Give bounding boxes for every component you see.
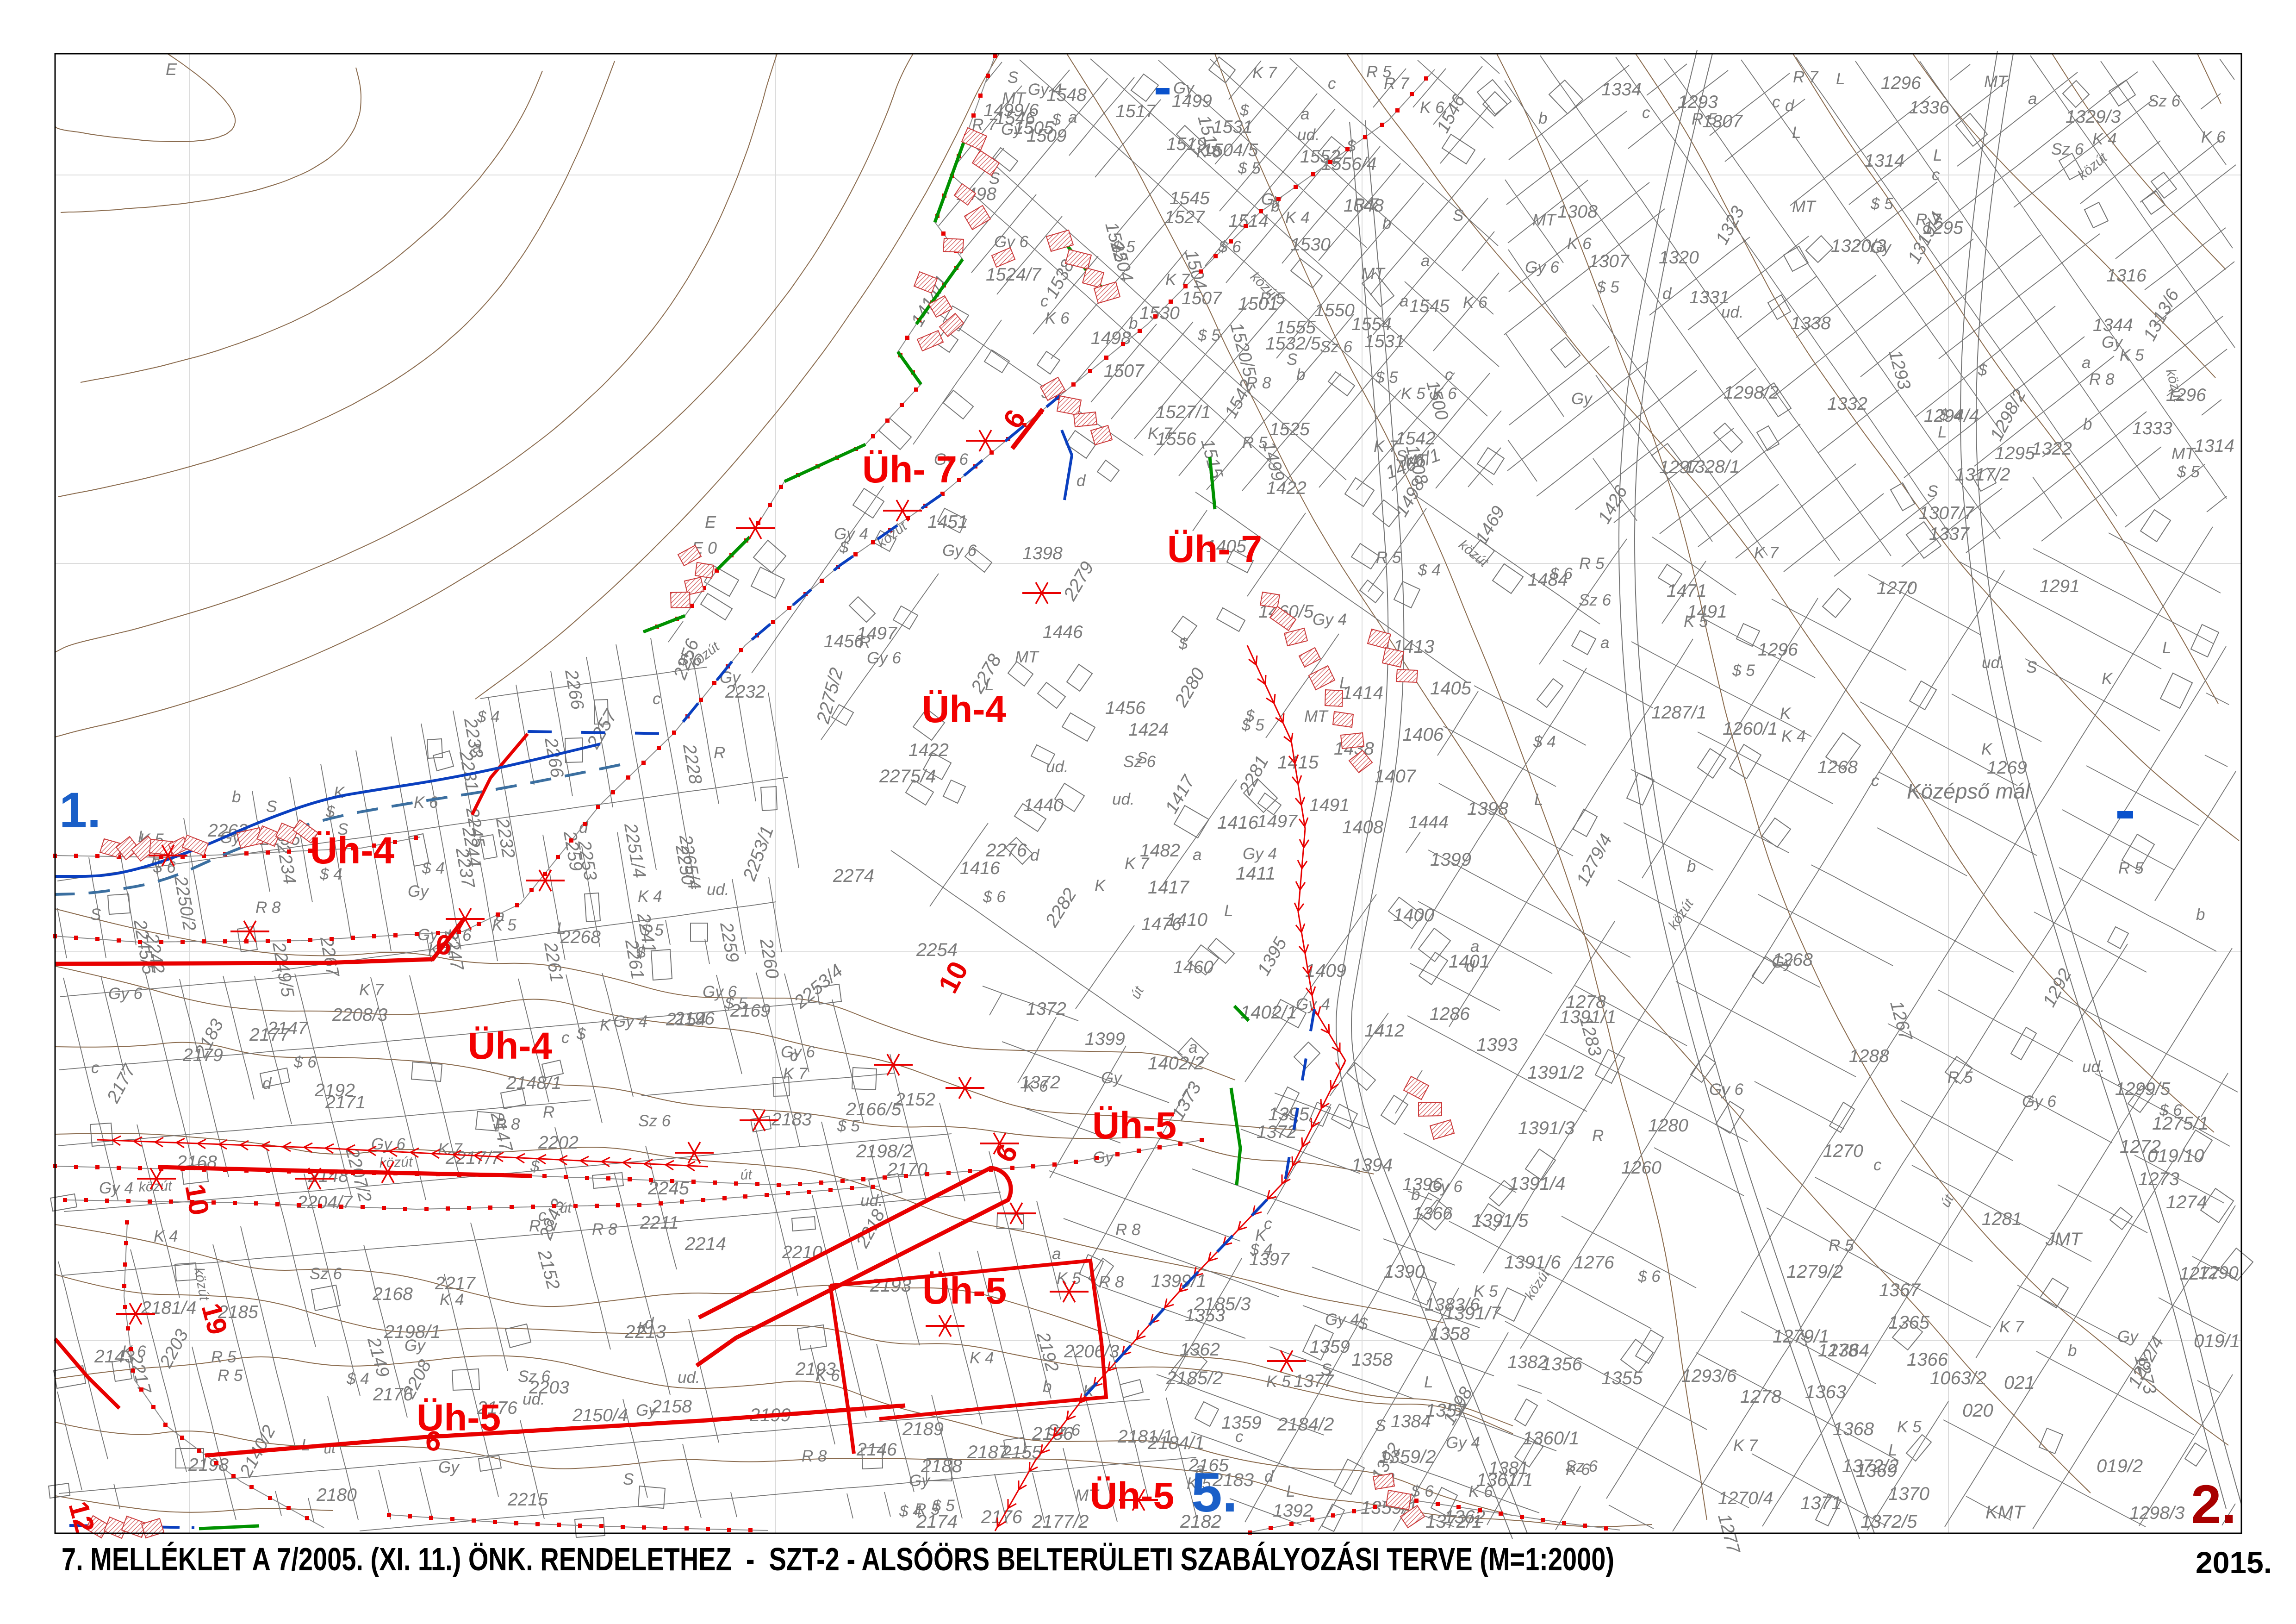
svg-text:c: c — [653, 690, 661, 708]
svg-text:Gy: Gy — [2117, 1328, 2139, 1346]
svg-text:d: d — [1030, 846, 1040, 864]
svg-text:1552: 1552 — [1300, 147, 1340, 167]
svg-text:2196: 2196 — [674, 1009, 715, 1029]
svg-text:2211: 2211 — [640, 1213, 679, 1233]
svg-text:a: a — [473, 738, 481, 756]
svg-text:1507: 1507 — [1182, 288, 1222, 308]
svg-text:1424: 1424 — [1128, 720, 1169, 740]
svg-text:K 7: K 7 — [1252, 64, 1277, 82]
svg-text:1405: 1405 — [1430, 678, 1472, 699]
svg-text:$ 6: $ 6 — [983, 888, 1006, 906]
svg-text:$: $ — [1346, 137, 1356, 155]
svg-text:Gy 4: Gy 4 — [1446, 1434, 1480, 1452]
svg-text:K 6: K 6 — [1432, 385, 1457, 403]
svg-text:1270/4: 1270/4 — [1718, 1488, 1773, 1508]
svg-text:a: a — [2028, 90, 2037, 108]
svg-text:S: S — [1453, 206, 1463, 225]
svg-text:2204/7: 2204/7 — [297, 1193, 353, 1212]
svg-text:1272: 1272 — [2120, 1137, 2161, 1157]
svg-text:R 8: R 8 — [1246, 374, 1271, 392]
svg-text:Gy: Gy — [408, 882, 429, 900]
svg-text:K 7: K 7 — [1125, 855, 1150, 873]
svg-text:L: L — [1286, 1482, 1295, 1500]
svg-text:1287/1: 1287/1 — [1651, 703, 1706, 723]
svg-text:1307: 1307 — [1589, 251, 1630, 271]
svg-text:1411: 1411 — [1236, 863, 1276, 884]
svg-text:d: d — [1076, 472, 1086, 490]
svg-text:2152: 2152 — [895, 1090, 935, 1110]
svg-text:2185/3: 2185/3 — [1194, 1294, 1251, 1314]
svg-text:$ 4: $ 4 — [477, 708, 500, 726]
svg-text:$ 5: $ 5 — [1870, 195, 1893, 213]
svg-text:L: L — [1792, 124, 1801, 142]
svg-text:c: c — [1445, 366, 1453, 384]
svg-text:K 6: K 6 — [1420, 99, 1444, 117]
svg-text:R 5: R 5 — [1242, 434, 1268, 452]
svg-text:1391/2: 1391/2 — [1527, 1062, 1584, 1083]
svg-text:E: E — [705, 512, 716, 531]
svg-text:ud.: ud. — [1046, 758, 1069, 776]
svg-text:K: K — [2102, 670, 2113, 688]
svg-text:Gy: Gy — [1001, 120, 1023, 138]
svg-text:S: S — [623, 1470, 634, 1488]
svg-text:K 7: K 7 — [783, 1065, 808, 1083]
svg-text:1279/2: 1279/2 — [1786, 1262, 1843, 1282]
svg-text:$: $ — [1239, 101, 1249, 119]
svg-text:K 5: K 5 — [2120, 346, 2144, 364]
svg-text:2198: 2198 — [188, 1455, 229, 1475]
svg-text:2177/2: 2177/2 — [1032, 1512, 1089, 1532]
svg-text:Gy 6: Gy 6 — [867, 649, 901, 667]
svg-text:$: $ — [530, 1157, 540, 1175]
svg-text:Gy: Gy — [1101, 1069, 1123, 1087]
svg-text:1357: 1357 — [1425, 1400, 1468, 1421]
svg-text:L: L — [1938, 423, 1947, 441]
svg-text:Gy 6: Gy 6 — [1428, 1178, 1462, 1196]
svg-text:b: b — [2083, 415, 2092, 433]
svg-text:Gy 4: Gy 4 — [1028, 81, 1062, 99]
svg-text:1402/2: 1402/2 — [1148, 1053, 1204, 1074]
svg-text:R 8: R 8 — [255, 899, 281, 917]
svg-text:MT: MT — [2172, 445, 2196, 463]
svg-text:$: $ — [1358, 1315, 1368, 1333]
svg-text:a: a — [1193, 846, 1201, 864]
svg-text:$: $ — [1178, 635, 1188, 653]
svg-text:$ 5: $ 5 — [1112, 238, 1135, 256]
svg-text:1317/2: 1317/2 — [1955, 465, 2010, 485]
svg-text:2174: 2174 — [916, 1512, 958, 1532]
svg-text:1391/5: 1391/5 — [1472, 1211, 1529, 1231]
svg-text:1276: 1276 — [1574, 1253, 1614, 1273]
svg-text:Sz 6: Sz 6 — [2148, 92, 2181, 110]
svg-text:K 4: K 4 — [638, 887, 662, 906]
svg-text:6: 6 — [435, 929, 453, 961]
svg-text:1531: 1531 — [1213, 117, 1253, 137]
svg-text:2185/2: 2185/2 — [1166, 1368, 1223, 1388]
svg-text:Gy 4: Gy 4 — [1325, 1311, 1359, 1329]
svg-text:1391/6: 1391/6 — [1504, 1252, 1561, 1273]
svg-text:K 6: K 6 — [414, 793, 438, 812]
svg-text:b: b — [1411, 1186, 1420, 1204]
svg-text:1260/1: 1260/1 — [1723, 719, 1778, 739]
svg-text:K 4: K 4 — [440, 1291, 464, 1309]
svg-text:1298/2: 1298/2 — [1724, 383, 1779, 403]
svg-text:$ 5: $ 5 — [1732, 662, 1755, 680]
svg-text:1451: 1451 — [927, 512, 968, 532]
svg-text:$ 4: $ 4 — [1939, 406, 1962, 424]
svg-text:$: $ — [636, 943, 646, 962]
svg-text:1391/4: 1391/4 — [1509, 1174, 1565, 1194]
svg-text:L: L — [557, 919, 566, 937]
svg-text:ud.: ud. — [523, 1390, 545, 1408]
svg-text:K 7: K 7 — [1374, 437, 1399, 456]
svg-text:2184/2: 2184/2 — [1277, 1414, 1334, 1435]
svg-text:R 7: R 7 — [1916, 211, 1941, 229]
svg-text:a: a — [1400, 292, 1408, 310]
svg-text:1525: 1525 — [1269, 419, 1310, 439]
svg-text:Gy 6: Gy 6 — [2022, 1093, 2056, 1111]
svg-text:1422: 1422 — [1266, 478, 1307, 498]
svg-text:b: b — [1538, 109, 1547, 127]
svg-text:S: S — [2026, 658, 2037, 676]
svg-text:R 5: R 5 — [1579, 555, 1605, 573]
svg-text:1299/5: 1299/5 — [2115, 1079, 2171, 1099]
svg-text:L: L — [2162, 639, 2171, 657]
svg-text:1390: 1390 — [1384, 1262, 1425, 1282]
svg-text:d: d — [1662, 285, 1672, 303]
svg-text:1366: 1366 — [1907, 1349, 1948, 1370]
svg-text:1273: 1273 — [2138, 1169, 2179, 1189]
svg-text:1314: 1314 — [1864, 151, 1904, 171]
svg-text:Gy 6: Gy 6 — [942, 542, 977, 560]
svg-text:1384: 1384 — [1391, 1412, 1431, 1431]
svg-text:b: b — [1043, 1378, 1052, 1396]
svg-text:2208/3: 2208/3 — [332, 1005, 388, 1025]
svg-text:MT: MT — [1361, 265, 1386, 283]
svg-text:019/1: 019/1 — [2194, 1331, 2240, 1351]
svg-text:1550: 1550 — [1314, 300, 1355, 320]
svg-text:1359/2: 1359/2 — [1379, 1447, 1436, 1467]
svg-text:Üh-4: Üh-4 — [922, 688, 1007, 731]
svg-text:R 5: R 5 — [1829, 1237, 1854, 1255]
svg-text:Gy: Gy — [1772, 953, 1793, 971]
svg-text:1407: 1407 — [1375, 766, 1417, 787]
svg-text:a: a — [1052, 1245, 1061, 1263]
svg-text:1291: 1291 — [2040, 576, 2080, 596]
svg-text:Üh- 7: Üh- 7 — [862, 449, 957, 491]
svg-text:R: R — [1592, 1127, 1604, 1145]
svg-text:1391/3: 1391/3 — [1518, 1118, 1574, 1138]
svg-text:1293: 1293 — [1678, 92, 1718, 112]
svg-text:R 8: R 8 — [495, 1115, 520, 1133]
svg-text:$ 5: $ 5 — [1238, 159, 1261, 177]
svg-text:1337: 1337 — [1929, 524, 1970, 544]
svg-text:1372/1: 1372/1 — [1425, 1512, 1482, 1532]
svg-text:R 5: R 5 — [218, 1367, 243, 1385]
svg-text:2254: 2254 — [916, 940, 958, 960]
svg-text:1332: 1332 — [1827, 394, 1867, 414]
svg-text:K 7: K 7 — [1754, 544, 1779, 562]
svg-text:S: S — [1321, 1361, 1332, 1379]
svg-text:1338: 1338 — [1791, 313, 1831, 333]
svg-text:R 5: R 5 — [1376, 549, 1401, 567]
svg-text:1446: 1446 — [1043, 622, 1083, 642]
svg-text:1392: 1392 — [1273, 1501, 1313, 1521]
svg-text:R 8: R 8 — [1115, 1221, 1141, 1239]
svg-text:MT: MT — [1984, 73, 2009, 91]
svg-text:$ 5: $ 5 — [1197, 326, 1220, 344]
svg-text:1394: 1394 — [1351, 1155, 1393, 1175]
svg-text:a: a — [2082, 354, 2091, 372]
svg-text:K 6: K 6 — [122, 1343, 146, 1361]
svg-text:1286: 1286 — [1430, 1004, 1470, 1024]
svg-text:1275/1: 1275/1 — [2152, 1113, 2209, 1134]
svg-text:Sz 6: Sz 6 — [310, 1265, 342, 1283]
svg-text:2166/5: 2166/5 — [846, 1099, 902, 1119]
svg-text:L: L — [1836, 70, 1845, 88]
svg-text:1270: 1270 — [1823, 1141, 1863, 1161]
svg-text:Gy 6: Gy 6 — [994, 233, 1028, 251]
svg-text:2215: 2215 — [507, 1490, 548, 1510]
svg-text:R 7: R 7 — [1384, 75, 1410, 93]
svg-text:K 6: K 6 — [1196, 143, 1221, 161]
svg-text:1401: 1401 — [1449, 951, 1490, 972]
svg-text:2189: 2189 — [902, 1419, 944, 1439]
svg-text:b: b — [1687, 857, 1696, 875]
svg-text:S: S — [1137, 749, 1147, 767]
svg-text:Gy: Gy — [1870, 238, 1892, 256]
svg-text:2268: 2268 — [560, 927, 601, 947]
svg-text:K 5: K 5 — [1897, 1418, 1922, 1436]
svg-text:Gy 6: Gy 6 — [108, 985, 143, 1003]
svg-text:1524/7: 1524/7 — [986, 265, 1042, 285]
svg-text:2274: 2274 — [833, 866, 874, 886]
svg-text:Sz 6: Sz 6 — [1579, 591, 1612, 609]
svg-text:b: b — [1129, 314, 1138, 332]
svg-text:1395: 1395 — [1268, 1104, 1310, 1124]
svg-text:7. MELLÉKLET A 7/2005. (XI. 11: 7. MELLÉKLET A 7/2005. (XI. 11.) ÖNK. RE… — [62, 1541, 1614, 1577]
svg-text:1356: 1356 — [1541, 1354, 1583, 1374]
svg-text:1371: 1371 — [1800, 1493, 1842, 1513]
svg-text:K 5: K 5 — [1474, 1282, 1498, 1300]
svg-text:Üh-5: Üh-5 — [1090, 1475, 1174, 1517]
svg-text:K 5: K 5 — [1266, 1373, 1291, 1391]
svg-text:Gy 6: Gy 6 — [1709, 1081, 1743, 1099]
svg-text:1268: 1268 — [1817, 757, 1858, 777]
svg-text:019/2: 019/2 — [2097, 1456, 2143, 1476]
svg-text:L: L — [1424, 1373, 1433, 1391]
svg-text:d: d — [1785, 97, 1795, 115]
svg-text:Gy 4: Gy 4 — [1243, 845, 1277, 863]
svg-text:1409: 1409 — [1305, 961, 1346, 981]
svg-text:2202: 2202 — [538, 1133, 579, 1153]
svg-text:1408: 1408 — [1342, 817, 1384, 837]
svg-text:K 4: K 4 — [970, 1349, 994, 1367]
svg-text:2015.: 2015. — [2196, 1545, 2272, 1580]
svg-text:K 7: K 7 — [1733, 1437, 1758, 1455]
svg-text:1269: 1269 — [1987, 758, 2027, 778]
svg-text:1545: 1545 — [1170, 188, 1210, 208]
svg-text:Üh-5: Üh-5 — [922, 1270, 1007, 1312]
svg-text:1270: 1270 — [1877, 578, 1917, 598]
svg-text:1372: 1372 — [1026, 999, 1066, 1019]
svg-text:2.: 2. — [2191, 1474, 2236, 1535]
svg-text:1545: 1545 — [1409, 296, 1450, 316]
svg-text:K 7: K 7 — [359, 981, 384, 999]
svg-text:út: út — [740, 1167, 753, 1183]
svg-text:K: K — [334, 784, 345, 802]
svg-text:R: R — [543, 1103, 554, 1121]
svg-text:1362: 1362 — [1180, 1340, 1220, 1360]
svg-text:1491: 1491 — [1309, 795, 1350, 815]
svg-text:c: c — [1040, 292, 1049, 310]
svg-text:2176: 2176 — [373, 1385, 413, 1405]
svg-text:R 5: R 5 — [2118, 859, 2144, 877]
svg-text:$ 4: $ 4 — [422, 859, 445, 877]
svg-text:1527/1: 1527/1 — [1156, 402, 1211, 422]
svg-text:$ 5: $ 5 — [2177, 463, 2200, 481]
svg-text:K: K — [1095, 877, 1106, 895]
svg-text:1363: 1363 — [1805, 1382, 1846, 1402]
svg-text:Üh- 7: Üh- 7 — [1167, 528, 1262, 570]
svg-text:$ 4: $ 4 — [1533, 733, 1556, 751]
svg-text:c: c — [1932, 166, 1940, 184]
svg-text:2276: 2276 — [985, 840, 1027, 861]
svg-text:2148/1: 2148/1 — [506, 1073, 561, 1093]
svg-text:1517: 1517 — [1115, 101, 1156, 121]
svg-text:$: $ — [1978, 361, 1987, 379]
svg-text:1460: 1460 — [1173, 957, 1213, 977]
svg-text:$ 4: $ 4 — [1250, 1241, 1273, 1259]
svg-text:Gy 4: Gy 4 — [99, 1179, 133, 1197]
svg-text:R 7: R 7 — [1793, 68, 1819, 86]
svg-text:1358: 1358 — [1351, 1349, 1393, 1370]
svg-text:2187: 2187 — [967, 1442, 1009, 1462]
svg-text:Középső mál: Középső mál — [1907, 779, 2031, 803]
svg-text:K 6: K 6 — [815, 1367, 840, 1385]
svg-text:1355: 1355 — [1601, 1368, 1643, 1388]
svg-text:MT: MT — [1792, 198, 1817, 216]
svg-text:c: c — [1328, 75, 1336, 93]
svg-text:2180: 2180 — [316, 1485, 357, 1505]
svg-text:R 8: R 8 — [802, 1447, 827, 1465]
svg-text:2198/1: 2198/1 — [384, 1322, 441, 1342]
svg-text:1399: 1399 — [1085, 1029, 1125, 1049]
svg-text:K 5: K 5 — [1401, 385, 1425, 403]
svg-text:1333: 1333 — [2132, 418, 2172, 438]
svg-text:MT: MT — [1532, 211, 1557, 229]
svg-text:a: a — [1300, 105, 1309, 123]
svg-text:1414: 1414 — [1342, 683, 1383, 703]
svg-text:1308: 1308 — [1557, 202, 1598, 222]
svg-text:1290: 1290 — [2198, 1263, 2239, 1283]
svg-text:1298/3: 1298/3 — [2129, 1503, 2185, 1523]
svg-text:1366: 1366 — [1412, 1204, 1453, 1224]
svg-text:c: c — [1871, 772, 1879, 790]
svg-text:K 7: K 7 — [438, 1140, 463, 1158]
svg-text:1281: 1281 — [1982, 1209, 2022, 1229]
svg-text:a: a — [1600, 634, 1609, 652]
svg-text:2158: 2158 — [651, 1397, 692, 1417]
svg-text:S: S — [266, 798, 277, 816]
svg-text:ud.: ud. — [1982, 654, 2004, 672]
svg-text:1440: 1440 — [1023, 795, 1064, 815]
svg-text:R 7: R 7 — [1353, 195, 1379, 213]
svg-text:b: b — [2196, 906, 2205, 924]
svg-text:R: R — [714, 744, 725, 762]
svg-text:Üh-4: Üh-4 — [310, 830, 395, 872]
svg-text:b: b — [1382, 214, 1391, 232]
svg-text:K 6: K 6 — [1024, 1077, 1048, 1095]
svg-text:a: a — [1068, 108, 1077, 126]
svg-text:1372: 1372 — [1257, 1122, 1297, 1142]
svg-text:1364: 1364 — [1828, 1340, 1869, 1361]
svg-text:$ 5: $ 5 — [641, 921, 664, 939]
svg-text:S: S — [1927, 482, 1938, 500]
svg-text:2168: 2168 — [372, 1284, 413, 1304]
svg-text:K: K — [1780, 705, 1792, 723]
svg-text:1.: 1. — [59, 782, 101, 838]
svg-text:K 7: K 7 — [1148, 425, 1173, 443]
svg-text:$ 4: $ 4 — [346, 1370, 369, 1388]
svg-text:$ 5: $ 5 — [1375, 369, 1398, 387]
svg-text:$ 5: $ 5 — [837, 1117, 860, 1135]
svg-text:1320: 1320 — [1659, 248, 1699, 268]
svg-text:c: c — [1642, 104, 1650, 122]
svg-text:5.: 5. — [1191, 1462, 1238, 1524]
svg-text:1444: 1444 — [1408, 812, 1449, 832]
svg-text:1417: 1417 — [1148, 877, 1190, 898]
svg-text:Üh-5: Üh-5 — [417, 1397, 501, 1439]
svg-text:1416: 1416 — [1217, 812, 1259, 833]
svg-text:1334: 1334 — [1601, 80, 1642, 100]
svg-text:b: b — [2068, 1342, 2077, 1360]
svg-text:Üh-4: Üh-4 — [468, 1025, 553, 1067]
svg-text:MT: MT — [1304, 707, 1329, 725]
svg-text:1372/5: 1372/5 — [1860, 1512, 1917, 1532]
svg-text:JMT: JMT — [2045, 1229, 2083, 1249]
svg-text:c: c — [1772, 93, 1780, 111]
svg-text:L: L — [1933, 146, 1942, 164]
svg-text:K 6: K 6 — [1567, 235, 1592, 253]
svg-text:1400: 1400 — [1393, 905, 1434, 925]
svg-text:2186: 2186 — [1032, 1424, 1074, 1444]
svg-text:L: L — [1224, 902, 1233, 920]
svg-text:1391/7: 1391/7 — [1444, 1303, 1501, 1324]
svg-text:ud.: ud. — [1297, 126, 1320, 144]
svg-text:Gy 4: Gy 4 — [1313, 611, 1347, 629]
svg-text:$ 4: $ 4 — [1418, 561, 1441, 579]
svg-text:1498: 1498 — [1091, 328, 1131, 348]
svg-text:MT: MT — [1002, 89, 1027, 107]
svg-text:1307/7: 1307/7 — [1919, 503, 1975, 523]
svg-text:1359: 1359 — [1310, 1337, 1350, 1357]
svg-text:ud.: ud. — [1112, 790, 1135, 808]
svg-text:1542: 1542 — [1395, 429, 1436, 449]
svg-text:R 8: R 8 — [2089, 370, 2115, 388]
svg-text:Sz 6: Sz 6 — [2051, 140, 2084, 158]
svg-text:Gy: Gy — [1571, 390, 1593, 408]
svg-text:1491: 1491 — [1687, 602, 1727, 622]
svg-text:1296: 1296 — [1758, 640, 1798, 660]
svg-text:R 5: R 5 — [211, 1348, 236, 1366]
svg-text:K: K — [1981, 740, 1993, 758]
svg-text:2198/2: 2198/2 — [856, 1141, 913, 1162]
svg-text:1514: 1514 — [1228, 211, 1269, 231]
svg-text:K 4: K 4 — [1781, 727, 1806, 745]
svg-text:$ 6: $ 6 — [1549, 565, 1573, 583]
svg-text:1358: 1358 — [1430, 1324, 1470, 1344]
